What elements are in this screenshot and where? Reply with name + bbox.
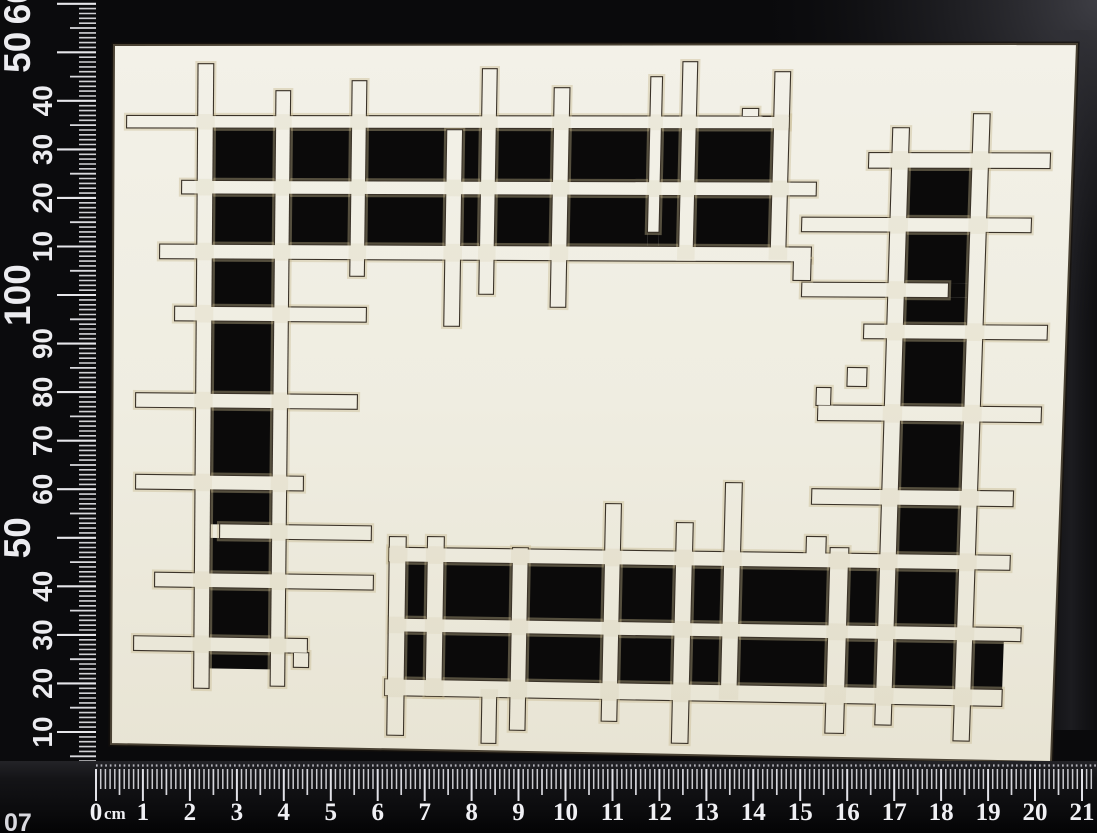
svg-text:15: 15: [788, 799, 813, 826]
svg-text:20: 20: [27, 182, 58, 213]
svg-text:17: 17: [882, 799, 907, 826]
svg-text:12: 12: [647, 799, 672, 826]
svg-text:90: 90: [27, 328, 58, 359]
svg-text:2: 2: [184, 799, 197, 826]
svg-text:40: 40: [27, 571, 58, 602]
svg-text:6: 6: [371, 799, 384, 826]
svg-text:100: 100: [0, 264, 38, 326]
svg-text:3: 3: [231, 799, 244, 826]
svg-text:80: 80: [27, 377, 58, 408]
svg-text:10: 10: [553, 799, 578, 826]
svg-text:4: 4: [278, 799, 291, 826]
svg-text:19: 19: [976, 799, 1001, 826]
svg-text:5: 5: [325, 799, 338, 826]
svg-text:9: 9: [512, 799, 525, 826]
svg-text:07: 07: [4, 809, 32, 833]
svg-text:13: 13: [694, 799, 719, 826]
svg-text:10: 10: [27, 716, 58, 747]
svg-text:30: 30: [27, 619, 58, 650]
svg-text:18: 18: [929, 799, 954, 826]
svg-text:70: 70: [27, 425, 58, 456]
svg-text:8: 8: [465, 799, 478, 826]
svg-text:16: 16: [835, 799, 860, 826]
svg-text:60: 60: [27, 474, 58, 505]
svg-text:11: 11: [601, 799, 625, 826]
svg-text:10: 10: [27, 231, 58, 262]
svg-text:7: 7: [418, 799, 431, 826]
svg-text:30: 30: [27, 134, 58, 165]
svg-text:14: 14: [741, 799, 767, 826]
svg-text:20: 20: [1023, 799, 1048, 826]
svg-text:21: 21: [1070, 799, 1095, 826]
svg-text:0: 0: [90, 799, 103, 826]
svg-text:cm: cm: [104, 804, 126, 823]
svg-text:60: 60: [0, 0, 38, 24]
svg-text:20: 20: [27, 668, 58, 699]
svg-text:1: 1: [137, 799, 150, 826]
svg-text:40: 40: [27, 85, 58, 116]
svg-text:50: 50: [0, 32, 38, 73]
svg-text:50: 50: [0, 517, 38, 558]
